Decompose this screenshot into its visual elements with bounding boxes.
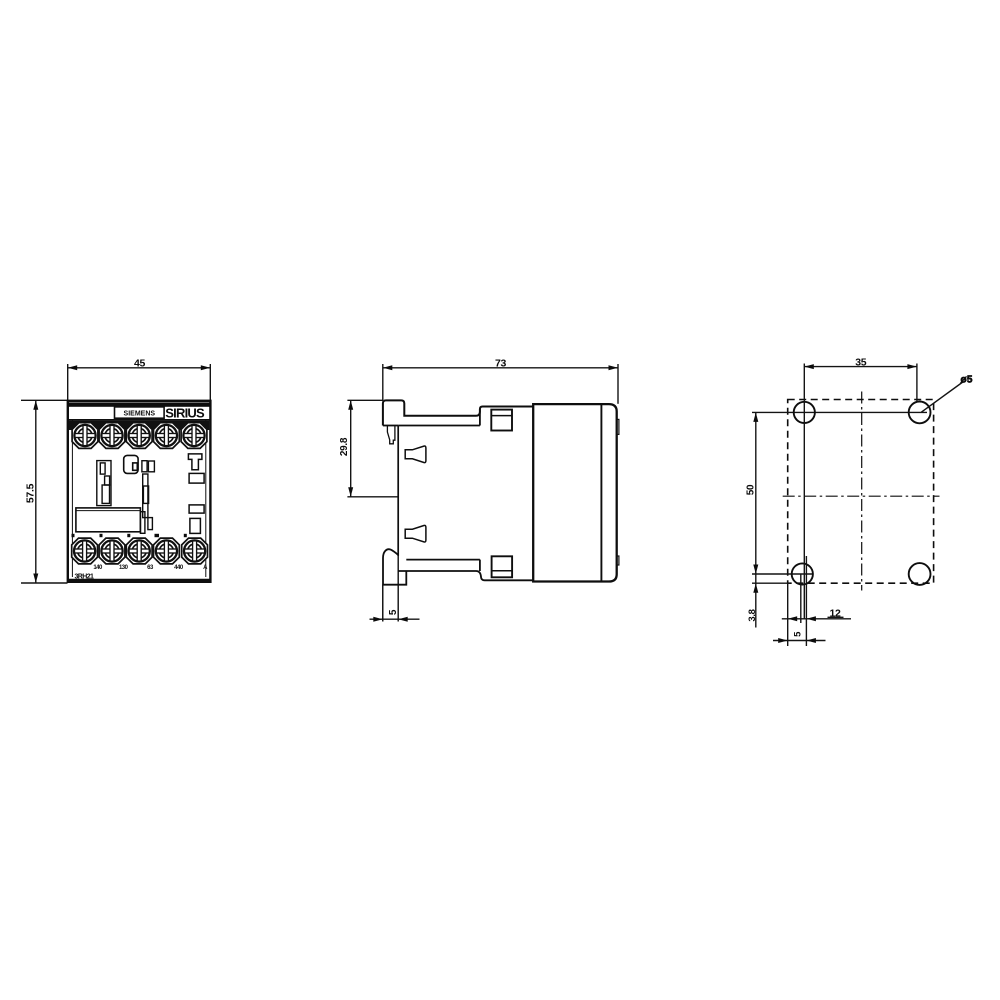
svg-text:50: 50 xyxy=(745,484,756,495)
svg-text:45: 45 xyxy=(134,357,146,369)
svg-text:130: 130 xyxy=(119,565,129,571)
svg-text:440: 440 xyxy=(174,565,184,571)
svg-text:SIRIUS: SIRIUS xyxy=(165,406,205,421)
svg-text:140: 140 xyxy=(93,565,103,571)
svg-text:ø5: ø5 xyxy=(961,374,973,385)
svg-text:5: 5 xyxy=(793,631,804,637)
svg-text:29.8: 29.8 xyxy=(339,437,350,456)
svg-text:35: 35 xyxy=(855,356,867,368)
svg-text:73: 73 xyxy=(495,357,507,369)
svg-text:SIEMENS: SIEMENS xyxy=(124,411,156,418)
svg-text:57.5: 57.5 xyxy=(24,483,36,503)
svg-text:5: 5 xyxy=(388,609,399,615)
svg-text:3.8: 3.8 xyxy=(747,609,758,621)
